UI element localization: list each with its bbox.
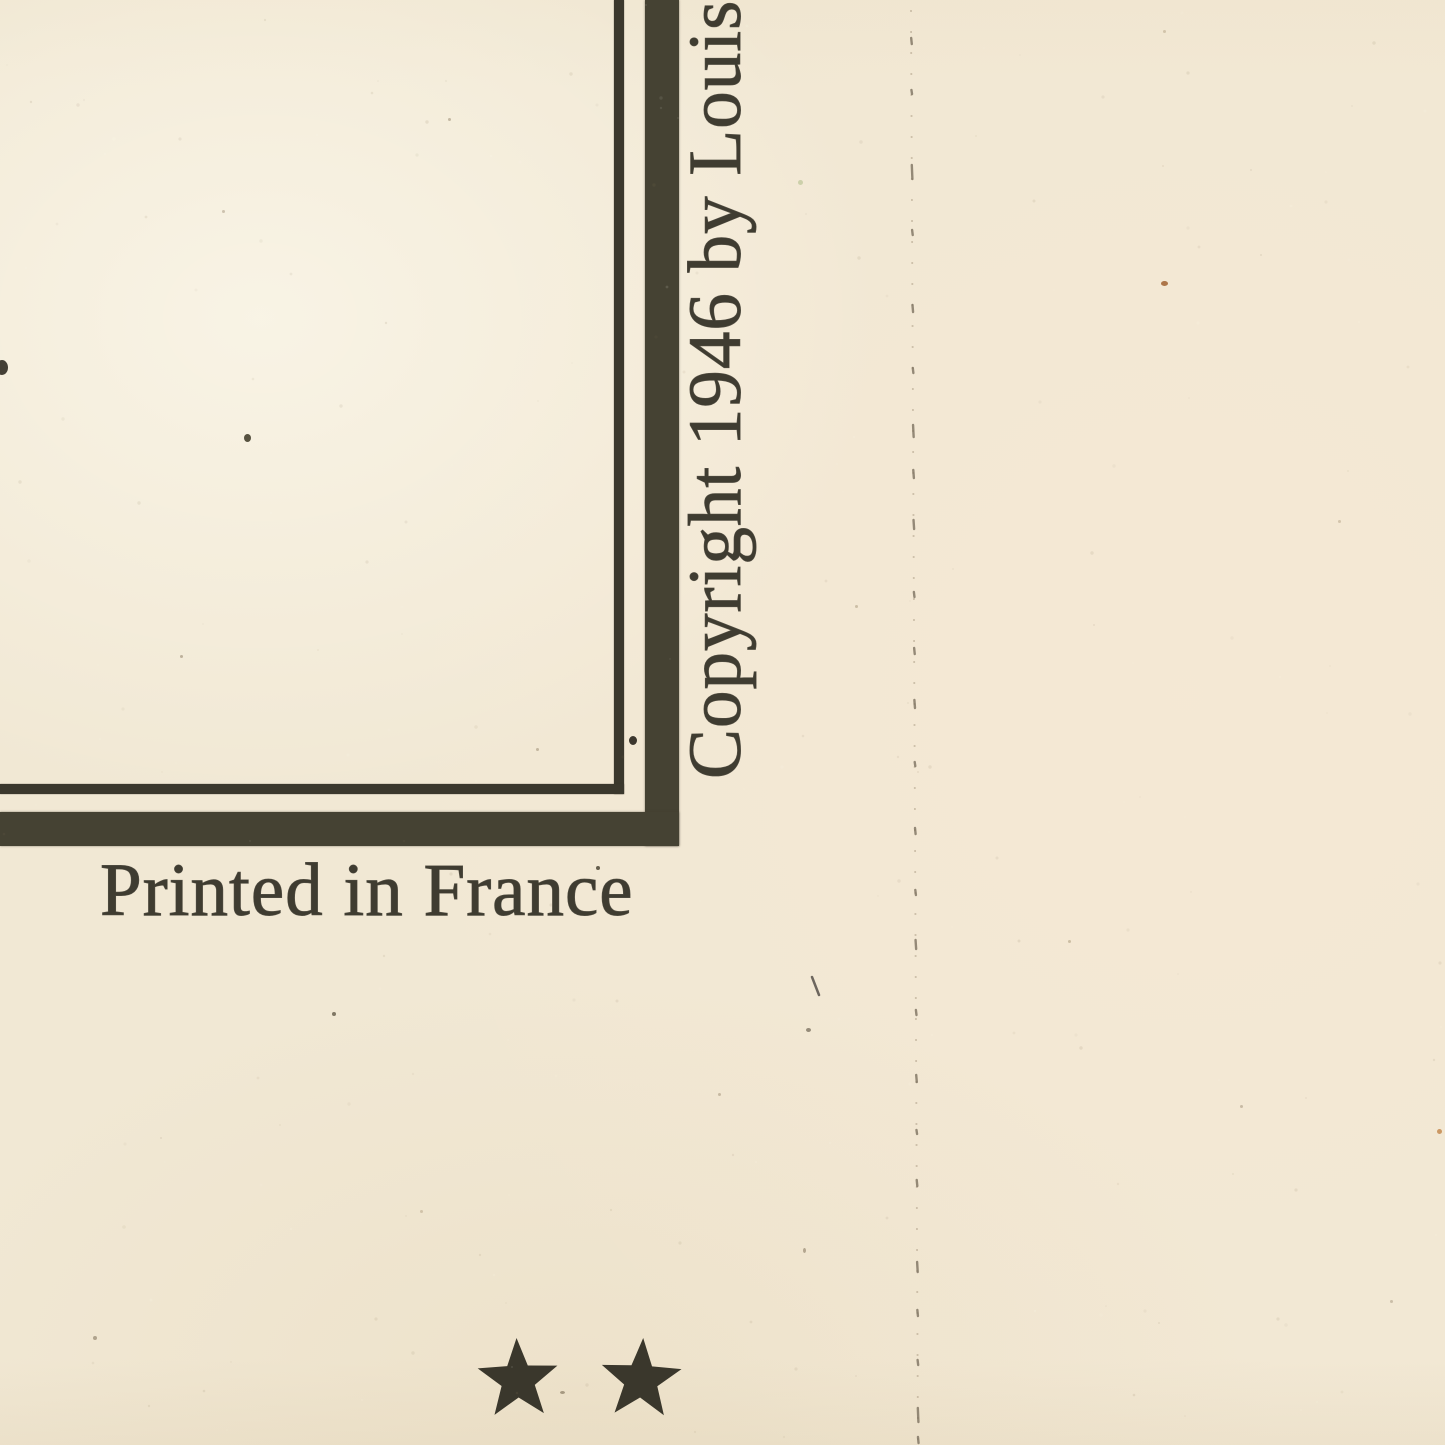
- copyright-notice: Copyright 1946 by Louis: [680, 0, 751, 779]
- fold-line-dash: [917, 1262, 918, 1272]
- fold-line-dash: [912, 230, 913, 235]
- paper-speck: [1240, 1105, 1243, 1108]
- paper-speck: [806, 1028, 811, 1032]
- map-neatline-horizontal: [0, 784, 624, 794]
- fold-line-dash: [915, 890, 916, 895]
- paper-speck: [1338, 520, 1341, 523]
- paper-speck: [180, 655, 183, 658]
- paper-speck: [855, 605, 858, 608]
- paper-speck: [0, 360, 8, 375]
- fold-line-dash: [918, 1408, 919, 1422]
- fold-line: [911, 10, 918, 1445]
- fold-line-dash: [916, 1010, 917, 1015]
- fold-line-dash: [914, 700, 915, 708]
- paper-speck: [1437, 1129, 1442, 1134]
- paper-speck: [93, 1336, 97, 1340]
- paper-speck: [536, 748, 539, 751]
- scratch-mark: [812, 977, 819, 995]
- paper-speck: [222, 210, 225, 213]
- printer-star-marks: [472, 1332, 688, 1428]
- fold-line-dash: [911, 90, 912, 94]
- fold-line-dash: [916, 1075, 917, 1082]
- fold-line-dash: [916, 940, 917, 949]
- paper-speck: [1163, 30, 1166, 33]
- printed-in-france-imprint: Printed in France: [100, 853, 634, 928]
- fold-line-dash: [918, 1437, 919, 1443]
- map-neatline-vertical: [614, 0, 624, 794]
- paper-speck: [332, 1012, 336, 1016]
- paper-speck: [803, 1248, 806, 1253]
- fold-line-dash: [913, 368, 914, 373]
- paper-speck: [718, 1093, 721, 1096]
- fold-line-dash: [912, 305, 913, 312]
- paper-speck: [448, 118, 451, 121]
- paper-speck: [1068, 940, 1071, 943]
- paper-speck: [629, 736, 637, 745]
- map-border-horizontal: [0, 812, 679, 846]
- fold-line-dash: [914, 520, 915, 529]
- star-icon: [599, 1336, 683, 1416]
- star-icon: [477, 1337, 559, 1416]
- fold-line-dash: [917, 1180, 918, 1186]
- paper-speck: [1161, 281, 1168, 286]
- fold-line-dash: [913, 470, 914, 478]
- fold-line-dash: [915, 828, 916, 834]
- scanned-map-corner-page: Copyright 1946 by Louis Printed in Franc…: [0, 0, 1445, 1445]
- fold-line-dash: [916, 1130, 917, 1134]
- fold-line-dash: [915, 762, 916, 766]
- fold-line-dash: [914, 648, 915, 654]
- paper-speck: [1390, 1300, 1393, 1303]
- paper-speck: [798, 180, 803, 185]
- fold-line-dash: [918, 1360, 919, 1365]
- paper-speck: [244, 434, 251, 442]
- fold-line-dash: [912, 165, 913, 179]
- fold-line-dash: [914, 592, 915, 597]
- fold-line-dash: [911, 38, 912, 44]
- fold-line-dash: [913, 425, 914, 437]
- paper-speck: [420, 1210, 423, 1213]
- fold-line-dash: [917, 1310, 918, 1316]
